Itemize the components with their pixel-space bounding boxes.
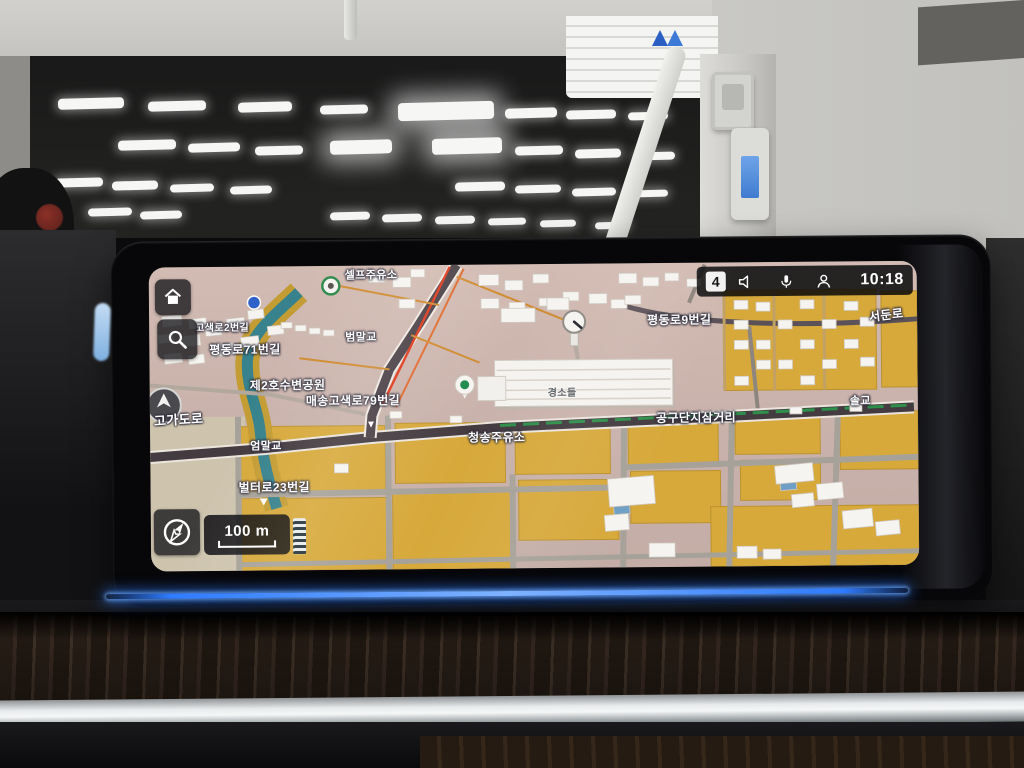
ceiling-light <box>238 101 292 112</box>
ceiling-corner-shadow <box>918 0 1024 65</box>
home-icon <box>163 287 183 307</box>
left-interior-shadow <box>0 230 116 630</box>
ceiling-light <box>58 97 124 110</box>
ceiling-light <box>188 142 240 152</box>
photo-scene: 셀프주유소고색로2번길평동로71번길범말교평동로9번길서둔로제2호수변공원매송고… <box>0 0 1024 768</box>
scale-label: 100 m <box>224 522 269 539</box>
wood-trim <box>0 612 1024 704</box>
ceiling-light <box>432 137 502 155</box>
ceiling-light <box>255 145 303 155</box>
ceiling-light <box>505 107 557 118</box>
ceiling-light <box>515 184 561 193</box>
ceiling-light <box>572 187 616 196</box>
red-knob <box>36 204 63 231</box>
map-factory <box>477 359 674 410</box>
scale-bracket <box>218 540 276 548</box>
clock: 10:18 <box>860 271 904 289</box>
ceiling-light <box>320 104 368 114</box>
notification-badge[interactable]: 4 <box>706 271 726 291</box>
ceiling-light <box>148 100 206 112</box>
navigation-screen[interactable]: 셀프주유소고색로2번길평동로71번길범말교평동로9번길서둔로제2호수변공원매송고… <box>149 261 920 572</box>
ceiling-light <box>88 207 132 216</box>
top-station-poi <box>322 277 339 294</box>
infotainment-display: 셀프주유소고색로2번길평동로71번길범말교평동로9번길서둔로제2호수변공원매송고… <box>110 234 993 608</box>
search-button[interactable] <box>157 319 197 359</box>
ceiling-light <box>515 145 563 155</box>
ceiling-light <box>540 220 576 228</box>
ceiling-light <box>140 210 182 219</box>
ceiling-light <box>435 215 475 224</box>
ceiling-light <box>398 101 494 122</box>
search-icon <box>166 328 188 350</box>
ceiling-light <box>455 181 505 191</box>
status-bar: 4 10:18 <box>697 265 913 297</box>
lower-wood-trim <box>420 736 1024 768</box>
ceiling-light <box>230 185 272 194</box>
ceiling-light <box>170 183 214 192</box>
wall-controller <box>731 128 769 220</box>
bezel-blue-reflection <box>93 303 111 362</box>
home-button[interactable] <box>155 279 191 315</box>
blue-poi <box>247 296 260 309</box>
ceiling-light <box>566 109 616 119</box>
ceiling-light <box>112 180 158 190</box>
ceiling-light <box>330 211 370 220</box>
volume-icon[interactable] <box>737 273 754 290</box>
ceiling-light <box>382 213 422 222</box>
ceiling-light <box>575 148 621 158</box>
ceiling-light <box>330 139 392 155</box>
wall-device-box <box>712 72 754 130</box>
roller-shutter-door <box>566 16 718 98</box>
compass-icon <box>161 516 193 548</box>
shutter-logo-mark <box>652 26 686 46</box>
hanging-rod <box>344 0 357 40</box>
roundabout-compass <box>149 388 181 422</box>
zoom-level-indicator[interactable] <box>293 518 306 554</box>
controller-screen <box>741 156 759 198</box>
map-scale[interactable]: 100 m <box>204 514 290 555</box>
ceiling-light <box>488 218 526 226</box>
ceiling-light <box>118 139 176 151</box>
profile-icon[interactable] <box>815 272 833 289</box>
compass-button[interactable] <box>154 509 200 555</box>
mic-icon[interactable] <box>779 272 794 289</box>
